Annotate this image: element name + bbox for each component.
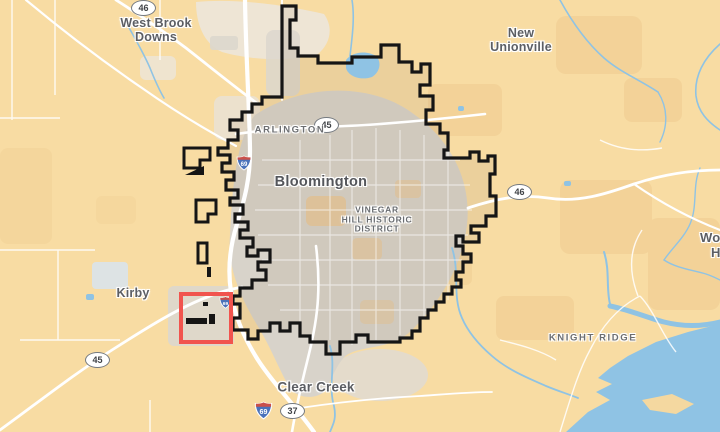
label-arlington: ARLINGTON	[255, 126, 326, 137]
label-new-unionville: New Unionville	[490, 26, 552, 54]
label-west-brook-downs-line1: West Brook	[120, 16, 191, 30]
route-46-shield-east-label: 46	[514, 187, 524, 197]
label-new-unionville-line1: New	[490, 26, 552, 40]
label-kirby: Kirby	[117, 286, 150, 300]
route-46-shield-nw-label: 46	[138, 3, 148, 13]
route-37-shield-label: 37	[287, 406, 297, 416]
label-clear-creek: Clear Creek	[277, 379, 354, 394]
route-45-shield-southwest-label: 45	[92, 355, 102, 365]
label-vinegar-hill-line3: DISTRICT	[342, 225, 413, 235]
label-vinegar-hill-historic-district: VINEGAR HILL HISTORIC DISTRICT	[342, 206, 413, 235]
quarry-pond	[92, 262, 128, 289]
svg-text:69: 69	[241, 162, 248, 168]
route-46-shield-nw: 46	[131, 0, 156, 16]
label-edge-partial: Wo H	[700, 231, 720, 260]
label-new-unionville-line2: Unionville	[490, 40, 552, 54]
label-knight-ridge: KNIGHT RIDGE	[549, 334, 637, 345]
highlight-rectangle	[179, 292, 233, 344]
label-edge-partial-line2: H	[700, 246, 720, 261]
map-canvas[interactable]: 69 69 69 46 45 46 45 37 West Brook Downs…	[0, 0, 720, 432]
label-west-brook-downs: West Brook Downs	[120, 16, 191, 44]
route-37-shield: 37	[280, 403, 305, 419]
label-edge-partial-line1: Wo	[700, 231, 720, 246]
route-46-shield-east: 46	[507, 184, 532, 200]
svg-text:69: 69	[260, 408, 268, 416]
label-west-brook-downs-line2: Downs	[120, 30, 191, 44]
label-bloomington: Bloomington	[275, 174, 368, 190]
route-45-shield-southwest: 45	[85, 352, 110, 368]
